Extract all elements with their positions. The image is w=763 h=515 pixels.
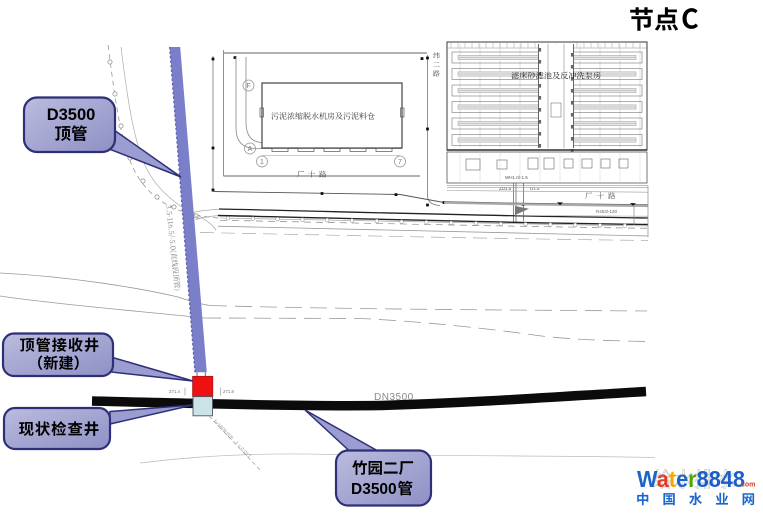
svg-text:1: 1 <box>260 159 264 166</box>
svg-text:D3500: D3500 <box>351 481 397 498</box>
svg-text:A: A <box>248 146 253 153</box>
svg-text:R453/-130: R453/-130 <box>596 209 618 214</box>
svg-text:F: F <box>246 83 250 90</box>
svg-text:D1.5: D1.5 <box>530 186 540 191</box>
svg-text:ZD1.5: ZD1.5 <box>499 186 512 191</box>
svg-text:271.8: 271.8 <box>223 389 235 394</box>
svg-text:WH1.0/-1.5: WH1.0/-1.5 <box>505 175 528 180</box>
svg-text:D3500: D3500 <box>47 106 96 124</box>
svg-text:.com: .com <box>739 482 755 489</box>
svg-text:271.4: 271.4 <box>169 389 181 394</box>
svg-text:7: 7 <box>398 159 402 166</box>
svg-text:1=1609.605 1 = 0.017: 1=1609.605 1 = 0.017 <box>212 418 252 460</box>
svg-text:Water8848: Water8848 <box>637 466 745 492</box>
svg-text:DN3500: DN3500 <box>374 392 414 403</box>
